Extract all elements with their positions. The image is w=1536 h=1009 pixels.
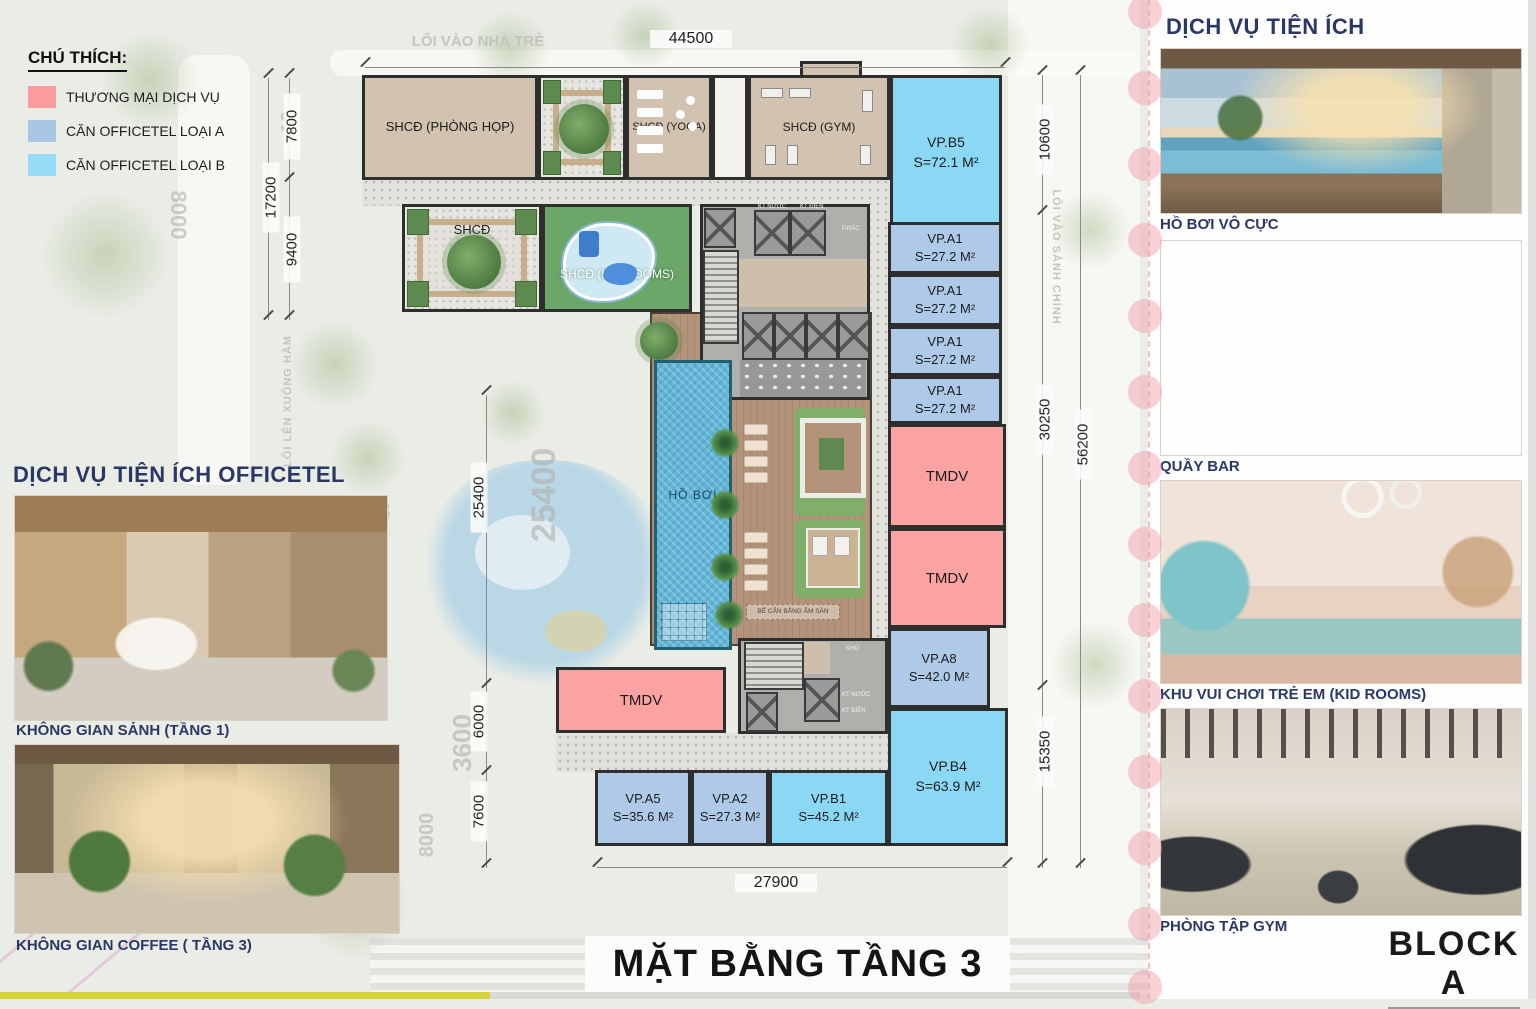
planter	[515, 281, 537, 307]
pool-steps	[661, 603, 707, 641]
site-sand-patch	[545, 610, 607, 652]
room-area: S=27.2 M²	[915, 400, 975, 418]
dim-label-44500: 44500	[650, 30, 732, 48]
legend-label-officetel-a: CĂN OFFICETEL LOẠI A	[66, 123, 224, 139]
dim-label-7800: 7800	[284, 94, 301, 160]
deco-circle	[1128, 831, 1162, 865]
yoga-mat	[637, 108, 663, 117]
site-tree	[1050, 190, 1130, 270]
dim-label-25400: 25400	[471, 463, 488, 533]
planter	[603, 151, 621, 175]
site-label-basement-ramp: LỐI LÊN XUỐNG HẦM	[282, 326, 294, 476]
room-label: VP.B1	[811, 790, 846, 808]
yoga-mat	[637, 144, 663, 153]
pergola	[800, 418, 866, 498]
room-shcd-kid-rooms: SHCĐ (KID ROOMS)	[542, 204, 692, 312]
ghost-dim: 8000	[416, 803, 440, 867]
room-label: VP.A5	[625, 790, 660, 808]
room-tmdv: TMDV	[556, 667, 726, 733]
room-label: TMDV	[620, 690, 663, 711]
yoga-mat	[637, 126, 663, 135]
photo-bar	[1160, 240, 1522, 456]
deco-circle	[1128, 907, 1162, 941]
gym-equipment	[761, 88, 783, 98]
kids-slide	[579, 231, 599, 257]
tree	[447, 235, 501, 289]
legend-title: CHÚ THÍCH:	[28, 48, 127, 72]
palm-tree	[710, 552, 740, 582]
elevator	[774, 312, 806, 360]
site-tree	[1050, 620, 1140, 710]
dim-label-15350: 15350	[1037, 717, 1054, 787]
legend-label-tmdv: THƯƠNG MẠI DỊCH VỤ	[66, 89, 220, 105]
gym-equipment	[787, 145, 798, 165]
room-tmdv: TMDV	[888, 528, 1006, 628]
photo-caption-gym: PHÒNG TẬP GYM	[1160, 918, 1287, 935]
room-area: S=42.0 M²	[909, 668, 969, 686]
legend-label-officetel-b: CĂN OFFICETEL LOẠI B	[66, 157, 225, 173]
deco-circle	[1128, 71, 1162, 105]
dim-label-9400: 9400	[284, 217, 301, 283]
yoga-ball	[676, 110, 685, 119]
deco-circle	[1128, 451, 1162, 485]
room-label: VP.A1	[927, 333, 962, 351]
deco-circle	[1128, 679, 1162, 713]
legend-swatch-officetel-a	[28, 120, 56, 142]
yoga-mat	[637, 90, 663, 99]
site-road-left	[178, 55, 250, 485]
dim-label-30250: 30250	[1037, 385, 1054, 455]
lounger	[744, 548, 768, 559]
room-vp-b4: VP.B4 S=63.9 M²	[888, 708, 1008, 846]
deco-circle	[1128, 527, 1162, 561]
site-road-right	[1008, 0, 1140, 992]
elevator	[804, 678, 840, 722]
room-label: VP.A1	[927, 382, 962, 400]
palm-tree	[714, 600, 744, 630]
site-label-lobby-entry: LỐI VÀO SẢNH CHÍNH	[1050, 182, 1062, 332]
photo-caption-bar: QUẦY BAR	[1160, 458, 1240, 475]
palm-tree	[710, 428, 740, 458]
room-label: VP.A1	[927, 282, 962, 300]
room-area: S=72.1 M²	[914, 153, 979, 173]
room-shcd-meeting: SHCĐ (PHÒNG HỌP)	[362, 75, 538, 180]
room-vp-a5: VP.A5 S=35.6 M²	[595, 770, 691, 846]
core-label-water: KT NƯỚC	[842, 692, 870, 698]
photo-caption-coffee: KHÔNG GIAN COFFEE ( TẦNG 3)	[16, 937, 252, 954]
gym-equipment	[765, 145, 776, 165]
room-entry-vestibule	[712, 75, 748, 180]
room-vp-a1: VP.A1 S=27.2 M²	[888, 222, 1002, 274]
kids-pool	[563, 223, 655, 301]
room-shcd-courtyard-mid: SHCĐ	[402, 204, 542, 312]
elevator	[838, 312, 870, 360]
room-vp-a1: VP.A1 S=27.2 M²	[888, 326, 1002, 376]
elevator	[704, 208, 736, 248]
lounger	[744, 440, 768, 451]
yoga-ball	[686, 96, 695, 105]
lounger	[744, 580, 768, 591]
core-label-storage: KHO	[846, 646, 859, 652]
elevator-lobby	[800, 642, 830, 674]
photo-coffee-terrace	[14, 744, 400, 934]
room-label: VP.A1	[927, 230, 962, 248]
legend-swatch-tmdv	[28, 86, 56, 108]
ghost-dim: 8000	[165, 180, 191, 250]
tree	[640, 322, 678, 360]
room-area: S=27.2 M²	[915, 248, 975, 266]
site-tree	[950, 5, 1030, 85]
room-label: TMDV	[926, 466, 969, 487]
plan-title-plate: MẶT BẰNG TẦNG 3	[585, 936, 1010, 992]
dim-label-6000: 6000	[471, 692, 488, 752]
room-label: VP.B4	[929, 757, 967, 777]
planter	[407, 281, 429, 307]
outdoor-chair	[834, 536, 850, 556]
elevator	[746, 692, 778, 732]
site-tree	[100, 30, 200, 130]
room-tmdv: TMDV	[888, 424, 1006, 528]
restrooms	[740, 360, 866, 397]
room-vp-b5: VP.B5 S=72.1 M²	[890, 75, 1002, 230]
dim-line	[365, 67, 1005, 68]
gym-equipment	[862, 90, 873, 112]
room-shcd-gym: SHCĐ (GYM)	[748, 75, 890, 180]
room-label: VP.A2	[712, 790, 747, 808]
lounger	[744, 456, 768, 467]
elevator	[790, 210, 826, 256]
planter	[603, 80, 621, 104]
planter	[543, 151, 561, 175]
lounger	[744, 532, 768, 543]
dim-label-10600: 10600	[1037, 105, 1054, 175]
room-vp-a1: VP.A1 S=27.2 M²	[888, 376, 1002, 424]
core-label-electric: KT ĐIỆN	[800, 204, 824, 210]
room-shcd-yoga: SHCĐ (YOGA)	[626, 75, 712, 180]
block-label: BLOCK A	[1388, 925, 1520, 1009]
kids-pool-water	[603, 263, 637, 285]
site-label-kindergarten-entry: LỐI VÀO NHÀ TRẺ	[398, 33, 558, 50]
room-area: S=35.6 M²	[613, 808, 673, 826]
room-area: S=27.2 M²	[915, 300, 975, 318]
left-panel-heading: DỊCH VỤ TIỆN ÍCH OFFICETEL	[13, 462, 345, 488]
elevator	[806, 312, 838, 360]
elevator	[754, 210, 790, 256]
core-label-trash: P.RÁC	[842, 226, 860, 232]
photo-infinity-pool	[1160, 48, 1522, 214]
room-area: S=63.9 M²	[916, 777, 981, 797]
photo-lobby	[14, 495, 388, 721]
elevator-lobby	[737, 259, 867, 307]
core-label-electric: KT ĐIỆN	[842, 708, 866, 714]
room-vp-a8: VP.A8 S=42.0 M²	[888, 628, 990, 708]
dim-tick	[263, 68, 274, 79]
dim-label-56200: 56200	[1075, 410, 1092, 480]
room-area: S=27.3 M²	[700, 808, 760, 826]
outdoor-chair	[812, 536, 828, 556]
corridor	[362, 178, 892, 206]
stairs	[744, 642, 804, 690]
room-area: S=45.2 M²	[798, 808, 858, 826]
deco-circle	[1128, 755, 1162, 789]
photo-caption-kid-rooms: KHU VUI CHƠI TRẺ EM (KID ROOMS)	[1160, 686, 1426, 703]
palm-tree	[710, 490, 740, 520]
lounger	[744, 564, 768, 575]
gym-equipment	[860, 145, 871, 165]
right-panel-margin	[1528, 0, 1536, 999]
dim-label-27900: 27900	[735, 874, 817, 892]
dim-line	[597, 867, 1007, 868]
room-label: VP.A8	[921, 650, 956, 668]
room-vp-a1: VP.A1 S=27.2 M²	[888, 274, 1002, 326]
planter	[543, 80, 561, 104]
photo-caption-infinity-pool: HỒ BƠI VÔ CỰC	[1160, 216, 1279, 233]
plan-title: MẶT BẰNG TẦNG 3	[613, 943, 983, 986]
room-label: SHCĐ (GYM)	[783, 119, 856, 136]
room-label: SHCĐ (PHÒNG HỌP)	[386, 118, 515, 136]
legend-swatch-officetel-b	[28, 154, 56, 176]
pergola-lawn	[819, 438, 844, 470]
dim-tick	[284, 68, 295, 79]
site-yellow-strip	[0, 992, 490, 999]
balance-pool-label: BỂ CÂN BẰNG ÂM SÀN	[746, 604, 840, 620]
deco-circle	[1128, 223, 1162, 257]
dim-tick	[592, 857, 603, 868]
deco-circle	[1128, 603, 1162, 637]
core-label-water: KT NƯỚC	[758, 204, 786, 210]
room-vp-a2: VP.A2 S=27.3 M²	[691, 770, 769, 846]
gym-equipment	[789, 88, 811, 98]
photo-kid-rooms	[1160, 480, 1522, 684]
deco-circle	[1128, 147, 1162, 181]
site-gray-strip	[490, 992, 1140, 999]
stairs	[703, 250, 739, 344]
right-panel-heading: DỊCH VỤ TIỆN ÍCH	[1166, 14, 1365, 40]
lounger	[744, 424, 768, 435]
room-label: VP.B5	[927, 133, 965, 153]
photo-gym	[1160, 708, 1522, 916]
room-vp-b1: VP.B1 S=45.2 M²	[769, 770, 888, 846]
room-area: S=27.2 M²	[915, 351, 975, 369]
photo-caption-lobby: KHÔNG GIAN SẢNH (TẦNG 1)	[16, 722, 229, 739]
room-label: TMDV	[926, 568, 969, 589]
deco-circle	[1128, 375, 1162, 409]
site-tree	[290, 320, 380, 410]
lounger	[744, 472, 768, 483]
deco-circle	[1128, 299, 1162, 333]
elevator	[742, 312, 774, 360]
corridor	[556, 733, 890, 772]
site-tree	[40, 190, 170, 320]
tree	[559, 104, 609, 154]
yoga-ball	[688, 122, 697, 131]
dim-label-17200: 17200	[263, 163, 280, 233]
room-shcd-courtyard-top: SHCĐ	[538, 75, 626, 180]
dim-label-7600: 7600	[471, 782, 488, 842]
ghost-dim: 25400	[525, 430, 565, 560]
